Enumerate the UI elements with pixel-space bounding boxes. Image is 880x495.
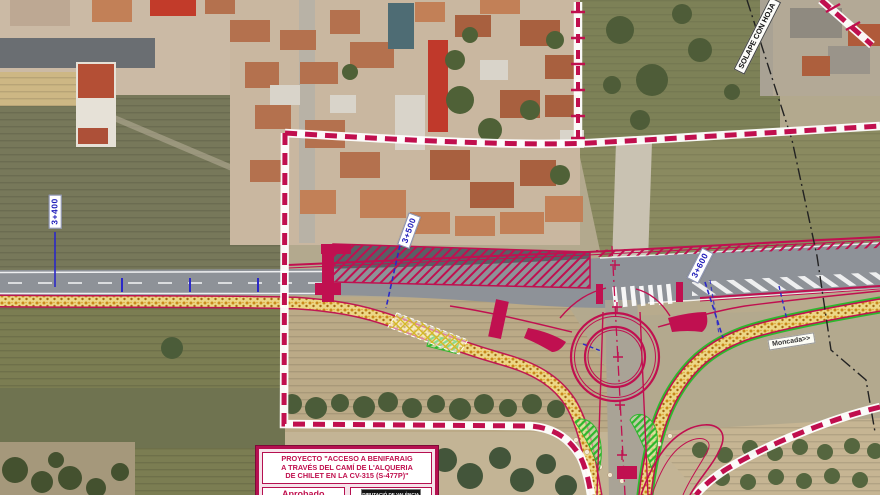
aerial-plan-drawing	[0, 0, 880, 495]
title-block: PROYECTO "ACCESO A BENIFARAIG A TRAVÉS D…	[256, 446, 438, 495]
project-title: PROYECTO "ACCESO A BENIFARAIG A TRAVÉS D…	[262, 452, 432, 484]
station-marker-3400: 3+400	[49, 194, 62, 228]
plan-canvas: 3+400 3+500 3+600 SOLAPE CON HOJA Moncad…	[0, 0, 880, 495]
approval-status: Aprobado	[262, 487, 345, 495]
project-title-line3: DE CHILET EN LA CV-315 (S-477P)"	[263, 472, 431, 481]
diputacio-logo: DIPUTACIÓ DE VALÈNCIA	[350, 487, 433, 495]
hatched-apron	[333, 244, 590, 288]
diputacio-logo-strip: DIPUTACIÓ DE VALÈNCIA	[361, 489, 421, 495]
